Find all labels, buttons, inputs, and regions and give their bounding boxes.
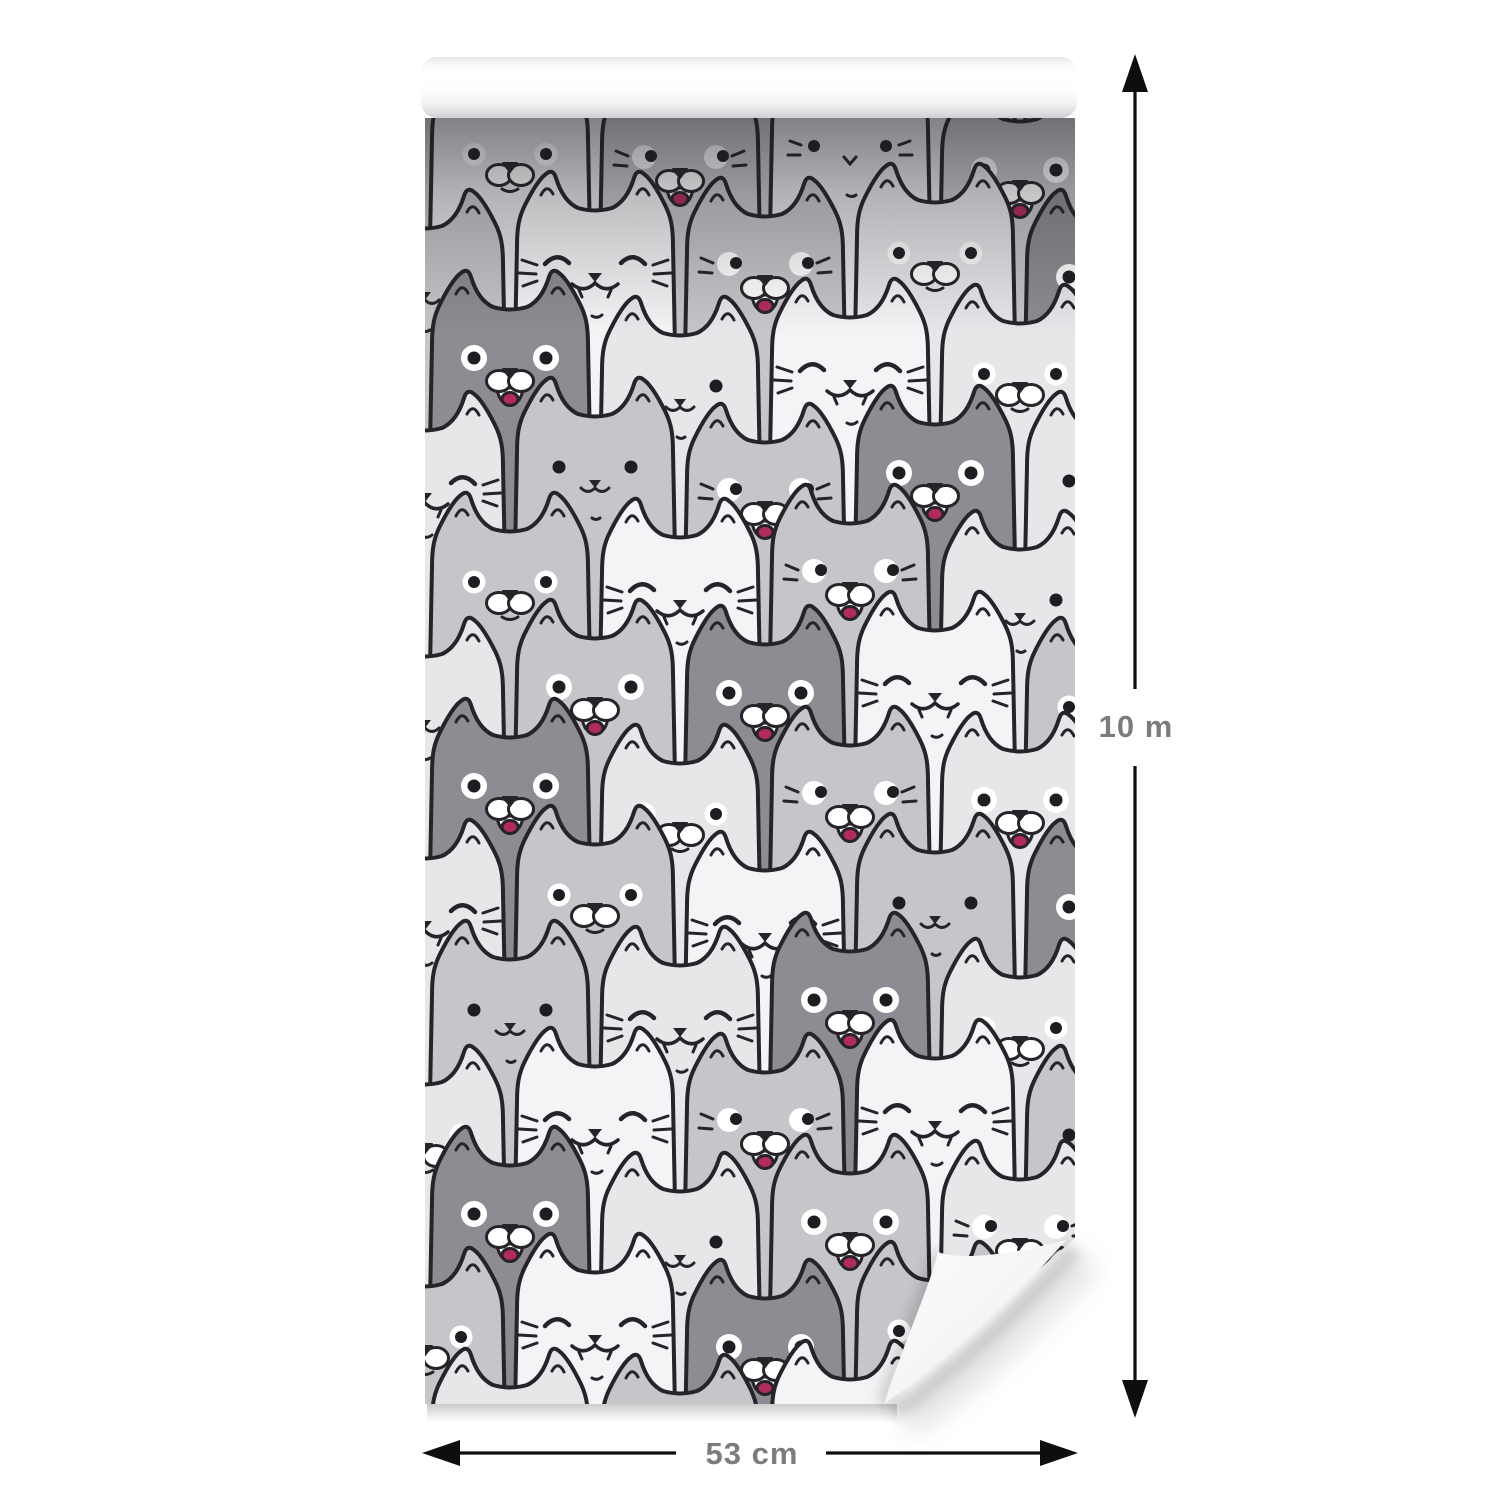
cat [341, 1248, 509, 1500]
width-label: 53 cm [706, 1436, 799, 1472]
product-image: 10 m 53 cm [0, 0, 1500, 1500]
wallpaper-illustration [0, 0, 1500, 1500]
wallpaper-roll [421, 57, 1077, 118]
sheet-drop-shadow [427, 1404, 897, 1422]
height-label: 10 m [1099, 709, 1174, 745]
roll-shadow-on-sheet [425, 118, 1075, 333]
cat [511, 1234, 679, 1500]
